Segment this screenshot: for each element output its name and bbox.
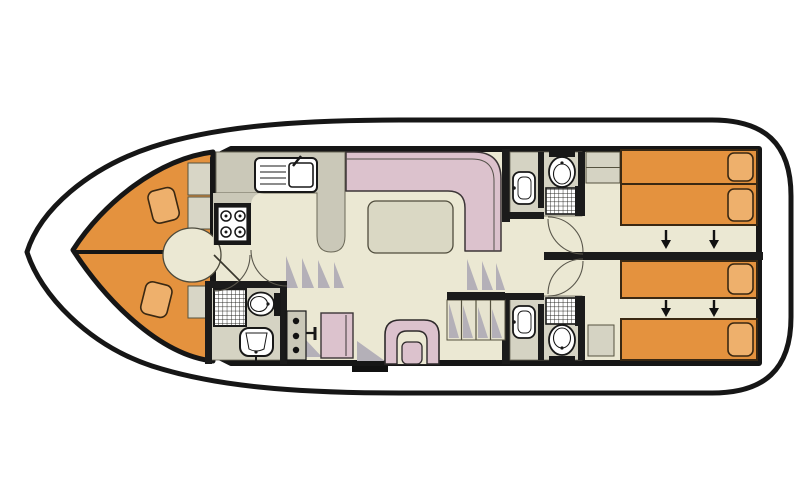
pillow (728, 189, 753, 221)
washbasin-icon (512, 172, 535, 204)
companionway-stairs (447, 292, 505, 340)
shower-icon (214, 289, 246, 326)
boat-floor-plan (0, 0, 810, 500)
pillow (728, 264, 753, 294)
boarding-step (352, 366, 388, 372)
forward-bathroom (205, 281, 287, 364)
gauge-icon (293, 318, 299, 324)
toilet-icon (549, 150, 575, 187)
stove-icon (214, 203, 251, 245)
pillow (728, 323, 753, 356)
shower-icon (546, 296, 583, 326)
washbasin-icon (512, 306, 535, 338)
pillow (728, 153, 753, 181)
aft-bathroom-port (502, 150, 585, 219)
shower-icon (546, 186, 583, 216)
helm-seat (321, 313, 353, 358)
galley-sink-icon (255, 156, 317, 192)
cabinet (588, 325, 614, 356)
toilet-icon (549, 325, 575, 363)
bow-entry-landing (163, 228, 221, 282)
floor-plan-canvas (0, 0, 810, 500)
aft-bathroom-starboard (502, 293, 585, 363)
armchair (385, 320, 439, 364)
saloon-table (368, 201, 453, 253)
gauge-icon (293, 333, 299, 339)
corridor-wall-upper (502, 149, 510, 222)
toilet-icon (248, 293, 281, 317)
gauge-icon (293, 347, 299, 353)
